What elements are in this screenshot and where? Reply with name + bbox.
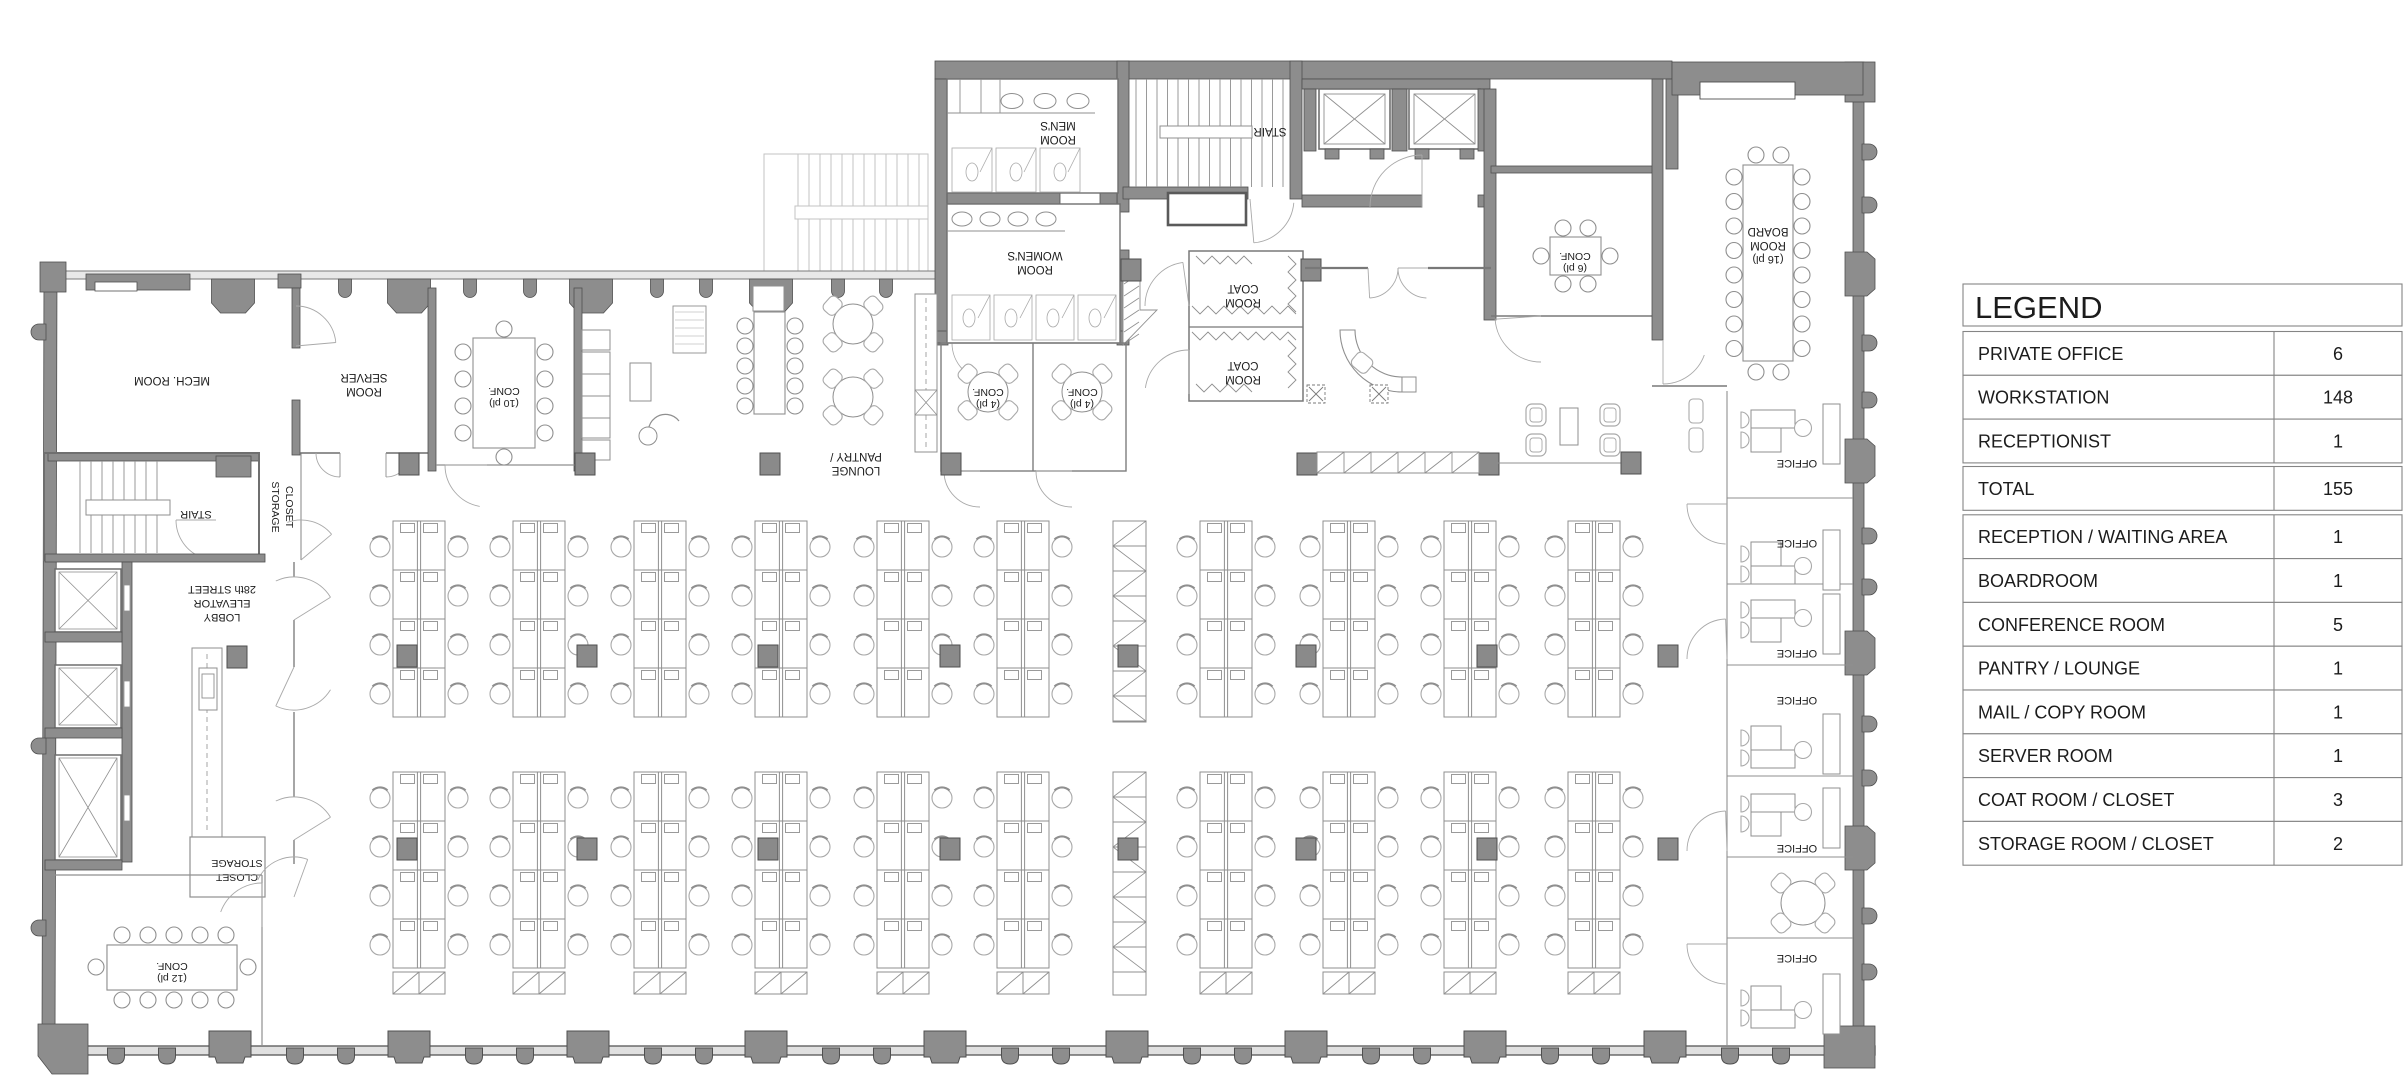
svg-text:COAT ROOM / CLOSET: COAT ROOM / CLOSET (1978, 790, 2174, 810)
svg-text:COAT: COAT (1227, 359, 1258, 371)
svg-text:STAIR: STAIR (180, 508, 212, 520)
svg-text:STAIR: STAIR (1253, 125, 1286, 137)
svg-text:OFFICE: OFFICE (1777, 537, 1817, 549)
svg-text:RECEPTION / WAITING AREA: RECEPTION / WAITING AREA (1978, 527, 2227, 547)
svg-text:1: 1 (2333, 432, 2343, 452)
svg-text:28th STREET: 28th STREET (188, 583, 256, 595)
svg-text:CONF.: CONF. (488, 385, 520, 397)
svg-text:1: 1 (2333, 527, 2343, 547)
svg-text:SERVER ROOM: SERVER ROOM (1978, 746, 2113, 766)
svg-text:(10 pl): (10 pl) (489, 397, 519, 409)
svg-text:1: 1 (2333, 746, 2343, 766)
svg-text:2: 2 (2333, 834, 2343, 854)
svg-text:(12 pl): (12 pl) (157, 972, 187, 984)
svg-text:BOARD: BOARD (1748, 225, 1789, 237)
svg-text:5: 5 (2333, 615, 2343, 635)
svg-text:3: 3 (2333, 790, 2343, 810)
svg-text:OFFICE: OFFICE (1777, 952, 1817, 964)
svg-text:(4 pl): (4 pl) (976, 398, 1000, 410)
svg-text:LEGEND: LEGEND (1975, 290, 2102, 325)
svg-text:6: 6 (2333, 344, 2343, 364)
svg-text:ROOM: ROOM (1040, 133, 1076, 145)
svg-text:PRIVATE OFFICE: PRIVATE OFFICE (1978, 344, 2123, 364)
svg-text:BOARDROOM: BOARDROOM (1978, 571, 2098, 591)
svg-text:OFFICE: OFFICE (1777, 694, 1817, 706)
svg-text:LOBBY: LOBBY (203, 611, 240, 623)
svg-text:CONF.: CONF. (156, 960, 188, 972)
svg-text:PANTRY /: PANTRY / (829, 450, 882, 462)
svg-text:MECH. ROOM: MECH. ROOM (134, 374, 210, 386)
svg-text:CONF.: CONF. (972, 386, 1004, 398)
svg-text:PANTRY / LOUNGE: PANTRY / LOUNGE (1978, 659, 2140, 679)
svg-text:OFFICE: OFFICE (1777, 647, 1817, 659)
svg-text:ROOM: ROOM (1750, 239, 1786, 251)
svg-text:CONF.: CONF. (1066, 386, 1098, 398)
svg-text:148: 148 (2323, 388, 2353, 408)
svg-text:ROOM: ROOM (1017, 263, 1053, 275)
svg-text:STORAGE ROOM / CLOSET: STORAGE ROOM / CLOSET (1978, 834, 2214, 854)
svg-text:CLOSET: CLOSET (215, 871, 258, 883)
svg-text:1: 1 (2333, 659, 2343, 679)
svg-text:SERVER: SERVER (340, 371, 387, 383)
svg-text:MEN'S: MEN'S (1040, 119, 1076, 131)
svg-text:ROOM: ROOM (346, 385, 382, 397)
svg-text:155: 155 (2323, 479, 2353, 499)
svg-text:1: 1 (2333, 571, 2343, 591)
svg-text:WORKSTATION: WORKSTATION (1978, 388, 2109, 408)
svg-text:(4 pl): (4 pl) (1070, 398, 1094, 410)
svg-text:TOTAL: TOTAL (1978, 479, 2034, 499)
svg-text:LOUNGE: LOUNGE (831, 464, 880, 476)
svg-text:MAIL / COPY ROOM: MAIL / COPY ROOM (1978, 702, 2146, 722)
svg-text:(6 pl): (6 pl) (1563, 262, 1587, 274)
svg-text:CONF.: CONF. (1559, 250, 1591, 262)
svg-text:ELEVATOR: ELEVATOR (194, 597, 251, 609)
svg-text:ROOM: ROOM (1225, 373, 1261, 385)
svg-text:OFFICE: OFFICE (1777, 842, 1817, 854)
svg-text:(16 pl): (16 pl) (1752, 253, 1783, 265)
svg-text:CONFERENCE ROOM: CONFERENCE ROOM (1978, 615, 2165, 635)
svg-text:1: 1 (2333, 702, 2343, 722)
svg-text:RECEPTIONIST: RECEPTIONIST (1978, 432, 2111, 452)
svg-text:OFFICE: OFFICE (1777, 457, 1817, 469)
svg-text:WOMEN'S: WOMEN'S (1007, 249, 1063, 261)
svg-text:STORAGE: STORAGE (269, 481, 281, 532)
svg-text:COAT: COAT (1227, 282, 1258, 294)
svg-text:ROOM: ROOM (1225, 296, 1261, 308)
svg-text:STORAGE: STORAGE (211, 857, 262, 869)
